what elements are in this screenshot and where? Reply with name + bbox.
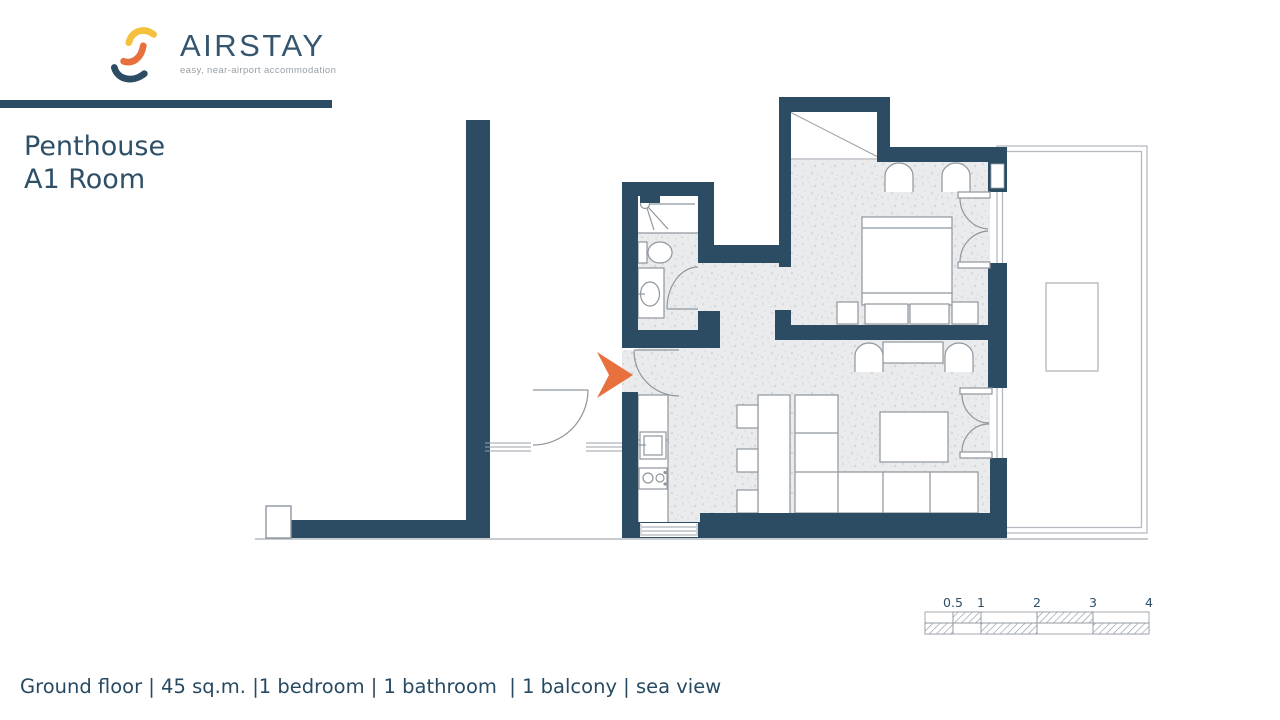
brand-text: AIRSTAY easy, near-airport accommodation: [180, 30, 336, 76]
page-title-line1: Penthouse: [24, 130, 165, 163]
bedroom-window: [991, 164, 1004, 188]
brand-name: AIRSTAY: [180, 30, 336, 62]
page-title-line2: A1 Room: [24, 163, 165, 196]
bedroom-void: [790, 112, 880, 160]
dining-chair: [737, 490, 758, 513]
scale-label: 0.5: [943, 595, 963, 610]
scale-label: 4: [1145, 595, 1153, 610]
dining-table: [758, 395, 790, 522]
header-divider: [0, 100, 332, 108]
column: [266, 506, 291, 538]
scale-bar: 0.5 1 2 3 4: [925, 595, 1153, 634]
console-table: [883, 342, 943, 363]
coffee-table: [880, 412, 948, 462]
kitchen-window: [640, 523, 698, 537]
landing-rails: [485, 443, 622, 451]
bed-bench: [837, 302, 978, 324]
brand-logo-icon: [106, 22, 164, 84]
cooktop: [639, 468, 667, 489]
kitchen-sink: [638, 432, 666, 459]
footer-caption: Ground floor | 45 sq.m. |1 bedroom | 1 b…: [20, 675, 721, 698]
bed: [862, 217, 952, 305]
armchair-arc: [855, 343, 883, 372]
scale-label: 1: [977, 595, 985, 610]
exterior-door-swing: [533, 390, 588, 445]
dining-chair: [737, 449, 758, 472]
balcony-table: [1046, 283, 1098, 371]
balcony: [997, 146, 1147, 533]
bathroom-sink: [638, 268, 664, 318]
closet-arc: [885, 163, 913, 192]
dining-chair: [737, 405, 758, 428]
kitchen-counter: [638, 395, 668, 527]
page: 0.5 1 2 3 4 AIRSTAY easy, near-airport a…: [0, 0, 1280, 720]
scale-label: 3: [1089, 595, 1097, 610]
brand-header: AIRSTAY easy, near-airport accommodation: [106, 22, 336, 84]
toilet: [638, 242, 672, 263]
page-title: Penthouse A1 Room: [24, 130, 165, 196]
brand-tagline: easy, near-airport accommodation: [180, 65, 336, 76]
armchair-arc: [945, 343, 973, 372]
floor-plan: 0.5 1 2 3 4: [0, 0, 1280, 720]
scale-label: 2: [1033, 595, 1041, 610]
closet-arc: [942, 163, 970, 192]
